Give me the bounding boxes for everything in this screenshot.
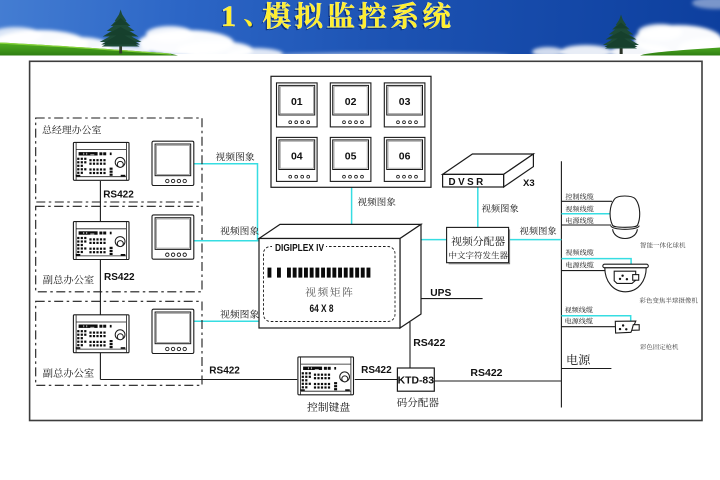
svg-text:KTD-83: KTD-83 (398, 375, 435, 386)
svg-text:UPS: UPS (430, 288, 451, 299)
svg-text:RS422: RS422 (209, 366, 240, 377)
svg-text:06: 06 (399, 151, 411, 163)
svg-text:04: 04 (291, 151, 303, 163)
svg-text:RS422: RS422 (361, 365, 392, 376)
svg-text:64 X 8: 64 X 8 (310, 303, 334, 315)
svg-text:03: 03 (399, 96, 411, 108)
svg-text:01: 01 (291, 96, 303, 108)
svg-text:05: 05 (345, 151, 357, 163)
svg-text:RS422: RS422 (104, 272, 135, 283)
svg-text:DIGIPLEX IV: DIGIPLEX IV (275, 243, 324, 254)
svg-text:1: 1 (221, 0, 236, 33)
svg-text:RS422: RS422 (103, 190, 134, 201)
svg-text:RS422: RS422 (413, 337, 445, 349)
svg-text:X3: X3 (523, 178, 535, 189)
svg-text:DVSR: DVSR (449, 177, 486, 188)
svg-text:RS422: RS422 (470, 367, 502, 379)
svg-text:02: 02 (345, 96, 357, 108)
